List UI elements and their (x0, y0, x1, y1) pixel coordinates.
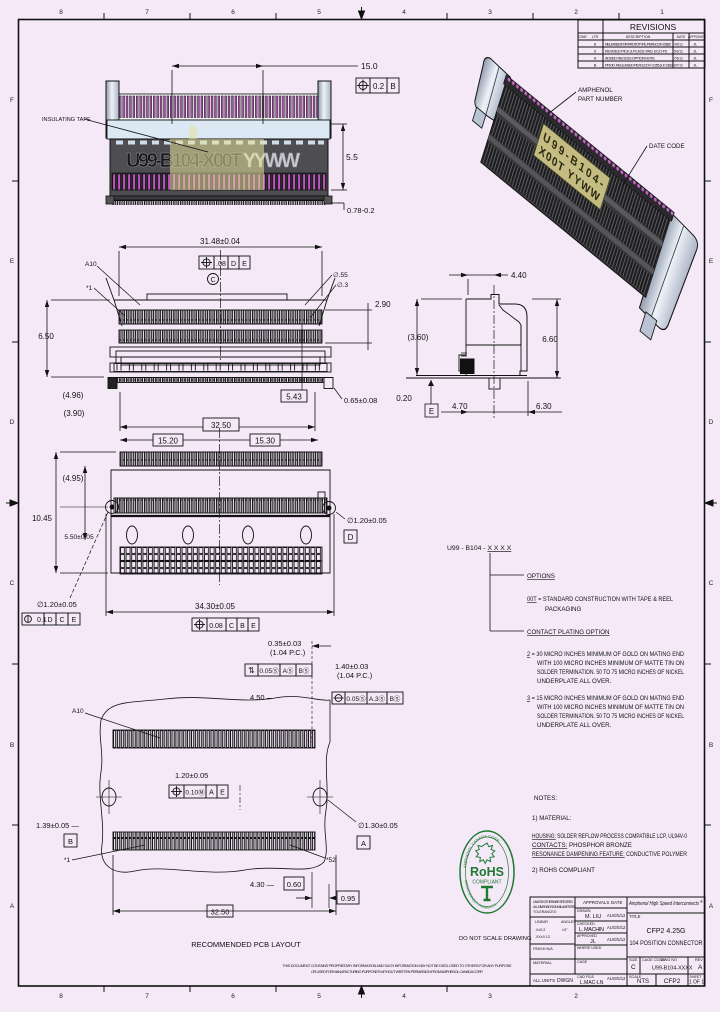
svg-text:B: B (390, 82, 395, 91)
svg-text:4.70: 4.70 (452, 402, 468, 411)
svg-text:CFP2: CFP2 (664, 978, 681, 985)
svg-text:2: 2 (574, 993, 578, 1000)
svg-text:WITH 100 MICRO INCHES MINIMUM: WITH 100 MICRO INCHES MINIMUM OF MATTE T… (537, 660, 684, 667)
svg-text:APPROVALS: APPROVALS (583, 900, 609, 905)
svg-text:4.50 —: 4.50 — (250, 693, 275, 702)
svg-text:L. MACHIN: L. MACHIN (579, 927, 604, 933)
svg-text:REV: REV (695, 958, 703, 962)
svg-text:AUG/5/12: AUG/5/12 (607, 976, 626, 981)
svg-text:APPROVED: APPROVED (688, 35, 706, 39)
svg-text:0.78-0.2: 0.78-0.2 (347, 206, 375, 215)
svg-text:SIZE: SIZE (629, 958, 638, 962)
svg-text:F: F (709, 97, 713, 104)
svg-text:9: 9 (594, 49, 596, 54)
svg-text:*52: *52 (326, 857, 336, 864)
svg-text:(4.96): (4.96) (63, 391, 84, 400)
svg-text:1.20±0.05: 1.20±0.05 (175, 771, 208, 780)
svg-text:∅1.20±0.05: ∅1.20±0.05 (37, 600, 77, 609)
svg-text:E: E (242, 261, 247, 268)
svg-text:®: ® (700, 899, 703, 904)
svg-text:D: D (47, 617, 52, 624)
svg-text:A: A (594, 56, 597, 61)
svg-text:AMPHENOL: AMPHENOL (578, 87, 613, 94)
svg-text:AⓈ: AⓈ (283, 667, 294, 675)
svg-text:WHERE USED: WHERE USED (577, 946, 602, 950)
svg-text:4.40: 4.40 (511, 271, 527, 280)
svg-text:RoHS: RoHS (470, 865, 504, 879)
svg-text:0.05Ⓢ: 0.05Ⓢ (259, 667, 279, 675)
svg-text:(1.04 P.C.): (1.04 P.C.) (270, 648, 306, 657)
svg-text:1: 1 (660, 9, 664, 16)
svg-text:DATE: DATE (677, 35, 687, 39)
svg-text:7: 7 (145, 9, 149, 16)
svg-text:B: B (68, 837, 73, 846)
svg-text:MATERIAL: MATERIAL (533, 961, 552, 965)
svg-text:ZONE: ZONE (577, 35, 587, 39)
svg-text:31.48±0.04: 31.48±0.04 (200, 237, 241, 246)
svg-text:(1.04 P.C.): (1.04 P.C.) (337, 671, 373, 680)
svg-text:CONTACT PLATING OPTION: CONTACT PLATING OPTION (527, 629, 610, 636)
svg-text:8: 8 (59, 9, 63, 16)
svg-text:APPROVED: APPROVED (577, 934, 597, 938)
svg-text:8/7/12: 8/7/12 (674, 64, 683, 68)
svg-text:COMPLIANT: COMPLIANT (472, 880, 501, 886)
svg-text:DWGN: DWGN (557, 978, 573, 984)
svg-text:1.40±0.03: 1.40±0.03 (335, 662, 368, 671)
svg-text:L.MAC-LN: L.MAC-LN (580, 980, 604, 986)
svg-text:CONTACTS: PHOSPHOR BRONZE: CONTACTS: PHOSPHOR BRONZE (532, 842, 632, 849)
svg-text:B: B (594, 63, 597, 68)
svg-text:CFP2 4.25G: CFP2 4.25G (647, 928, 686, 935)
svg-text:THIS DOCUMENT CONTAINS PROPRIE: THIS DOCUMENT CONTAINS PROPRIETARY INFOR… (283, 964, 512, 968)
svg-text:B: B (240, 623, 245, 630)
svg-text:FINISH N/A: FINISH N/A (533, 947, 553, 951)
svg-text:CAGE: CAGE (577, 960, 588, 964)
svg-text:DWG NO: DWG NO (661, 958, 677, 962)
svg-text:AUG/5/12: AUG/5/12 (607, 937, 626, 942)
svg-text:PACKAGING: PACKAGING (545, 606, 582, 613)
svg-text:CHECKED: CHECKED (577, 922, 595, 926)
svg-text:NOTES:: NOTES: (534, 795, 557, 802)
svg-text:LTR: LTR (592, 35, 599, 39)
svg-text:DESCRIPTION: DESCRIPTION (626, 35, 651, 39)
svg-text:10.45: 10.45 (32, 514, 53, 523)
svg-text:OPTIONS: OPTIONS (527, 573, 555, 580)
svg-text:OR USED FOR MANUFACTURING PURP: OR USED FOR MANUFACTURING PURPOSES WITHO… (311, 970, 483, 974)
svg-text:6.50: 6.50 (38, 332, 54, 341)
svg-text:SOLDER TERMINATION. 50 TO 75 M: SOLDER TERMINATION. 50 TO 75 MICRO INCHE… (537, 713, 684, 720)
svg-text:(3.90): (3.90) (64, 409, 85, 418)
svg-text:.X±0.2: .X±0.2 (535, 928, 545, 932)
svg-text:SOLDER TERMINATION. 50 TO 75 M: SOLDER TERMINATION. 50 TO 75 MICRO INCHE… (537, 669, 684, 676)
svg-text:7: 7 (145, 993, 149, 1000)
svg-text:REVISED PICK & PLACE PAD. ECO-: REVISED PICK & PLACE PAD. ECO-F5 (605, 49, 667, 54)
svg-text:AUG/5/12: AUG/5/12 (607, 925, 626, 930)
svg-text:LINEAR: LINEAR (535, 920, 548, 924)
svg-text:(3.60): (3.60) (408, 333, 429, 342)
svg-text:PART NUMBER: PART NUMBER (578, 96, 623, 103)
svg-text:∅.55: ∅.55 (333, 272, 348, 279)
svg-text:DRAWN: DRAWN (577, 909, 591, 913)
svg-text:2.90: 2.90 (375, 300, 391, 309)
svg-text:5: 5 (317, 993, 321, 1000)
svg-text:UNDERPLATE ALL OVER.: UNDERPLATE ALL OVER. (537, 678, 612, 685)
svg-text:4.30 —: 4.30 — (250, 880, 275, 889)
svg-text:8: 8 (594, 42, 596, 47)
svg-text:5: 5 (317, 9, 321, 16)
svg-text:4: 4 (402, 9, 406, 16)
svg-text:NTS: NTS (637, 979, 649, 985)
svg-text:PROD. RELEASED PER ECO F-2156: PROD. RELEASED PER ECO F-2156 & F-2183 (605, 63, 673, 68)
svg-text:1) MATERIAL:: 1) MATERIAL: (532, 815, 572, 822)
svg-text:32.50: 32.50 (211, 421, 232, 430)
svg-text:∅1.20±0.05: ∅1.20±0.05 (347, 516, 387, 525)
svg-text:6: 6 (231, 993, 235, 1000)
svg-text:15.0: 15.0 (361, 61, 378, 71)
svg-text:JL: JL (590, 939, 596, 945)
svg-text:5.50±0.05: 5.50±0.05 (64, 534, 94, 541)
svg-text:4/9/12: 4/9/12 (674, 43, 683, 47)
svg-text:3 = 15 MICRO INCHES MINIMUM OF: 3 = 15 MICRO INCHES MINIMUM OF GOLD ON M… (527, 695, 684, 702)
svg-text:⇅: ⇅ (248, 666, 255, 675)
svg-text:B: B (10, 742, 14, 749)
svg-text:DATE: DATE (611, 900, 622, 905)
svg-text:ALL DIMENSIONS IN MILLIMETERS: ALL DIMENSIONS IN MILLIMETERS (533, 905, 576, 909)
svg-text:C: C (10, 580, 15, 587)
svg-text:5/3/12: 5/3/12 (674, 50, 683, 54)
svg-text:6.60: 6.60 (542, 335, 558, 344)
svg-text:DATE CODE: DATE CODE (649, 143, 685, 150)
svg-text:ALL UNITS: ALL UNITS (533, 978, 555, 983)
svg-text:.08: .08 (216, 261, 226, 268)
svg-text:A: A (209, 790, 214, 797)
svg-text:CAD FILE: CAD FILE (577, 975, 595, 979)
svg-text:6.30: 6.30 (536, 402, 552, 411)
svg-text:A10: A10 (85, 261, 97, 268)
svg-text:D: D (709, 419, 714, 426)
svg-text:2: 2 (574, 9, 578, 16)
svg-text:REVISIONS: REVISIONS (630, 22, 677, 32)
svg-text:E: E (220, 790, 225, 797)
svg-text:D: D (348, 533, 354, 542)
svg-text:UNDERPLATE ALL OVER.: UNDERPLATE ALL OVER. (537, 722, 612, 729)
svg-text:SHEET: SHEET (690, 975, 703, 979)
svg-text:104 POSITION CONNECTOR: 104 POSITION CONNECTOR (630, 940, 703, 947)
svg-text:*1: *1 (64, 857, 71, 864)
svg-text:(4.95): (4.95) (63, 474, 84, 483)
svg-text:TITLE: TITLE (629, 914, 641, 919)
svg-text:A: A (709, 903, 714, 910)
svg-text:2) ROHS COMPLIANT: 2) ROHS COMPLIANT (532, 867, 595, 874)
svg-text:B: B (709, 742, 713, 749)
svg-text:DO NOT SCALE DRAWING: DO NOT SCALE DRAWING (459, 936, 532, 942)
svg-text:∅.3: ∅.3 (337, 282, 348, 289)
svg-text:E: E (709, 258, 714, 265)
svg-text:4: 4 (402, 993, 406, 1000)
svg-text:M. LIU: M. LIU (585, 914, 601, 920)
svg-text:A.3Ⓢ: A.3Ⓢ (369, 695, 386, 703)
svg-text:U99-B104-XXXX: U99-B104-XXXX (652, 966, 693, 972)
svg-text:TOLERANCES:: TOLERANCES: (533, 910, 557, 914)
svg-text:0.35±0.03: 0.35±0.03 (268, 639, 301, 648)
svg-text:D: D (231, 261, 236, 268)
svg-text:Amphenol High Speed Interconne: Amphenol High Speed Interconnects (628, 901, 699, 907)
svg-text:A10: A10 (72, 708, 84, 715)
svg-text:15.20: 15.20 (158, 437, 179, 446)
svg-text:0.10Ⓜ: 0.10Ⓜ (185, 789, 205, 797)
svg-text:7/6/12: 7/6/12 (674, 57, 683, 61)
svg-text:RECOMMENDED PCB LAYOUT: RECOMMENDED PCB LAYOUT (191, 940, 301, 949)
svg-text:INSULATING TAPE: INSULATING TAPE (42, 117, 91, 123)
svg-text:C: C (59, 617, 64, 624)
svg-text:00T = STANDARD CONSTRUCTION WI: 00T = STANDARD CONSTRUCTION WITH TAPE & … (527, 596, 674, 603)
svg-text:0.05Ⓢ: 0.05Ⓢ (346, 695, 366, 703)
svg-text:C: C (709, 580, 714, 587)
svg-text:32.50: 32.50 (211, 908, 230, 917)
svg-text:3: 3 (488, 993, 492, 1000)
svg-text:U99 - B104 - X X X X: U99 - B104 - X X X X (447, 545, 512, 552)
svg-text:C: C (210, 277, 215, 284)
svg-text:D: D (10, 419, 15, 426)
svg-text:BⓈ: BⓈ (299, 667, 310, 675)
svg-text:1.39±0.05 —: 1.39±0.05 — (36, 821, 79, 830)
svg-text:0.1: 0.1 (37, 617, 47, 624)
svg-text:E: E (72, 617, 77, 624)
svg-text:.XX±0.13: .XX±0.13 (535, 935, 550, 939)
svg-text:ANGLES: ANGLES (561, 920, 576, 924)
svg-text:E: E (251, 623, 256, 630)
svg-text:C: C (631, 964, 636, 971)
svg-text:0.2: 0.2 (373, 82, 385, 91)
svg-text:E: E (10, 258, 15, 265)
svg-text:AUG/5/12: AUG/5/12 (607, 913, 626, 918)
svg-text:3: 3 (488, 9, 492, 16)
svg-text:C: C (229, 623, 234, 630)
svg-text:A: A (698, 964, 703, 971)
svg-text:±3°: ±3° (562, 928, 568, 932)
svg-text:ADDED RECESS OPTION NOTE: ADDED RECESS OPTION NOTE (605, 56, 655, 61)
svg-text:UNLESS OTHERWISE SPECIFIED: UNLESS OTHERWISE SPECIFIED (533, 900, 574, 904)
svg-text:8: 8 (59, 993, 63, 1000)
svg-text:HOUSING: SOLDER REFLOW PROCES: HOUSING: SOLDER REFLOW PROCESS COMPATIBL… (532, 833, 687, 840)
svg-text:RELEASED FOR PROTOTYPE. PER EC: RELEASED FOR PROTOTYPE. PER ECO-F-21692 (605, 42, 671, 47)
svg-text:F: F (10, 97, 14, 104)
svg-text:6: 6 (231, 9, 235, 16)
svg-text:5.5: 5.5 (346, 152, 358, 162)
svg-text:0.65±0.08: 0.65±0.08 (344, 396, 377, 405)
svg-text:0.95: 0.95 (341, 894, 356, 903)
svg-text:34.30±0.05: 34.30±0.05 (195, 602, 236, 611)
svg-text:5.43: 5.43 (286, 393, 302, 402)
svg-text:0.60: 0.60 (287, 880, 302, 889)
svg-text:15.30: 15.30 (255, 437, 276, 446)
svg-text:0.20: 0.20 (396, 394, 412, 403)
svg-text:*1: *1 (86, 285, 93, 292)
svg-text:WITH 100 MICRO INCHES MINIMUM: WITH 100 MICRO INCHES MINIMUM OF MATTE T… (537, 704, 684, 711)
svg-text:RESONANCE DAMPENING FEATURE:: RESONANCE DAMPENING FEATURE: CONDUCTIVE … (532, 851, 687, 858)
svg-text:2 = 30 MICRO INCHES MINIMUM OF: 2 = 30 MICRO INCHES MINIMUM OF GOLD ON M… (527, 651, 684, 658)
svg-text:BⓈ: BⓈ (390, 695, 401, 703)
svg-text:0.08: 0.08 (209, 623, 223, 630)
svg-text:A: A (10, 903, 15, 910)
svg-text:E: E (429, 407, 434, 416)
svg-text:∅1.30±0.05: ∅1.30±0.05 (358, 821, 398, 830)
svg-text:A: A (361, 839, 366, 848)
svg-text:1 OF 1: 1 OF 1 (689, 980, 705, 986)
